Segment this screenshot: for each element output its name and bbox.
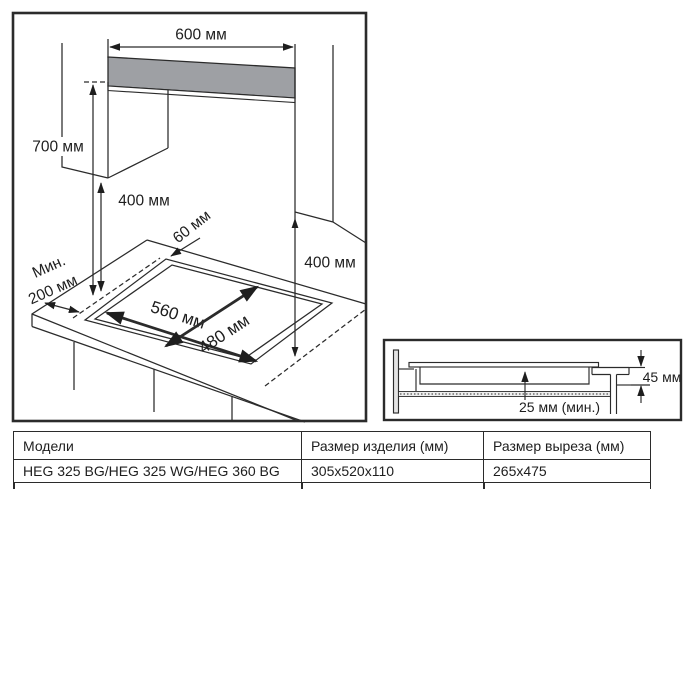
dimension-560-label: 560 мм: [148, 297, 208, 333]
dimension-25-label: 25 мм (мин.): [519, 399, 600, 415]
spec-table: Модели Размер изделия (мм) Размер выреза…: [13, 431, 651, 483]
installation-drawing: 600 мм 700 мм 400 мм 400 мм: [0, 0, 700, 700]
side-panel: [394, 350, 399, 413]
dimension-45-label: 45 мм: [643, 369, 682, 385]
table-cell-cutout-size: 265x475: [484, 460, 650, 482]
table-header-models: Модели: [14, 432, 302, 460]
dimension-400-right-label: 400 мм: [304, 255, 355, 272]
main-diagram: 600 мм 700 мм 400 мм 400 мм: [13, 13, 366, 422]
left-cabinet: [108, 82, 168, 178]
table-border-stub: [483, 482, 485, 489]
cross-section-diagram: 45 мм 25 мм (мин.): [384, 340, 681, 420]
hob-glass: [409, 363, 599, 368]
min-side-dashed-line: [73, 258, 160, 318]
dimension-min-200: Мин. 200 мм: [26, 252, 80, 312]
dimension-700-label: 700 мм: [32, 139, 83, 156]
table-header-cutout-size: Размер выреза (мм): [484, 432, 650, 460]
dimension-45: 45 мм: [629, 350, 681, 403]
page: 600 мм 700 мм 400 мм 400 мм: [0, 0, 700, 700]
dimension-600-label: 600 мм: [175, 27, 226, 44]
dimension-60-label: 60 мм: [170, 207, 214, 247]
table-border-stub: [13, 482, 15, 489]
table-cell-models: HEG 325 BG/HEG 325 WG/HEG 360 BG: [14, 460, 302, 482]
table-border-stub: [301, 482, 303, 489]
table-cell-product-size: 305x520x110: [302, 460, 484, 482]
hob-body: [420, 367, 589, 384]
table-border-stub: [650, 482, 652, 489]
hood-bar: [84, 57, 295, 103]
dimension-600: 600 мм: [108, 27, 293, 59]
right-dashed-line: [265, 309, 366, 386]
worktop-cutout: [73, 258, 366, 386]
dimension-400-left-label: 400 мм: [118, 193, 169, 210]
table-header-product-size: Размер изделия (мм): [302, 432, 484, 460]
